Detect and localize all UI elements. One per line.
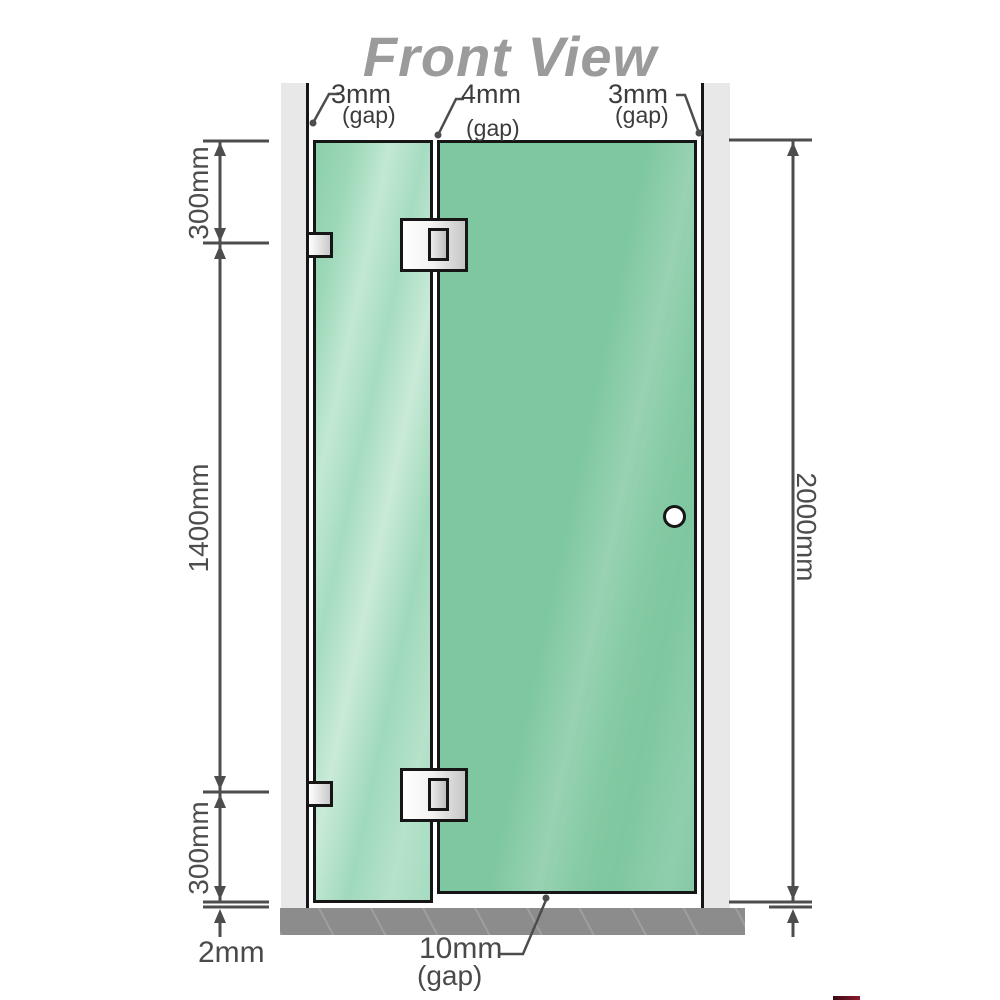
door-glass-panel — [437, 140, 697, 894]
glass-hinge-bottom — [400, 768, 468, 822]
glass-hinge-top — [400, 218, 468, 272]
arrowhead — [214, 142, 226, 156]
dim-middle-1400mm: 1400mm — [183, 448, 215, 588]
gap-bottom-suffix: (gap) — [417, 960, 482, 992]
floor-base — [280, 908, 745, 935]
door-handle-knob — [663, 505, 686, 528]
wall-bracket-top — [306, 232, 333, 258]
arrowhead — [787, 142, 799, 156]
dim-bottom-300mm: 300mm — [183, 788, 215, 908]
glass-hinge-bottom-clamp — [428, 778, 449, 811]
arrowhead — [214, 886, 226, 900]
arrowhead — [214, 228, 226, 242]
gap-left-suffix: (gap) — [342, 102, 396, 129]
left-wall — [281, 83, 309, 908]
arrowhead — [214, 909, 226, 923]
gap-middle-value: 4mm — [461, 79, 521, 110]
arrowhead — [214, 794, 226, 808]
dim-total-2000mm: 2000mm — [790, 452, 822, 602]
dim-top-300mm: 300mm — [183, 133, 215, 253]
gap-right-suffix: (gap) — [615, 102, 669, 129]
arrowhead — [214, 776, 226, 790]
arrowhead — [787, 909, 799, 923]
cropped-watermark — [833, 996, 860, 1000]
gap-middle-suffix: (gap) — [466, 115, 520, 142]
glass-hinge-top-clamp — [428, 228, 449, 261]
wall-bracket-bottom — [306, 781, 333, 807]
right-wall — [701, 83, 730, 908]
dim-floor-clearance-2mm: 2mm — [198, 936, 265, 970]
arrowhead — [214, 245, 226, 259]
front-view-diagram: Front View — [0, 0, 1000, 1000]
arrowhead — [787, 886, 799, 900]
